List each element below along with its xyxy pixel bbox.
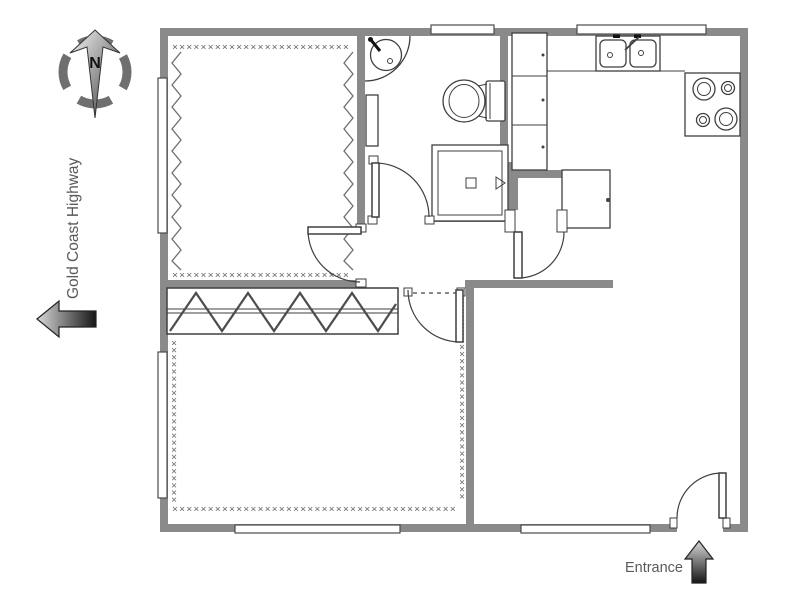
wall-shelf: [366, 95, 378, 146]
entrance-door-swing: [677, 473, 722, 518]
bedroom1-pattern-right: [344, 52, 353, 270]
bathroom-door-jamb-right: [425, 216, 434, 224]
window-bedroom2-south: [235, 525, 400, 533]
window-living-south: [521, 525, 650, 533]
burner-bl-outer: [697, 114, 710, 127]
doors: [308, 156, 730, 533]
compass-letter: N: [89, 55, 101, 72]
bedroom2-door-leaf: [456, 290, 463, 342]
bedroom2-pattern-bottom: ××××××××××××××××××××××××××××××××××××××××: [172, 504, 457, 515]
bedroom1-pattern-bottom: ×××××××××××××××××××××××××: [172, 270, 350, 281]
double-sink: [596, 32, 660, 71]
kitchen-door-jamb-east: [557, 210, 567, 232]
bathroom: [365, 36, 508, 221]
cabinet-handle-3: [542, 146, 545, 149]
corner-basin: [365, 36, 410, 81]
shower: [432, 145, 508, 221]
bedroom1-pattern-top: ×××××××××××××××××××××××××: [172, 42, 350, 53]
shower-outline: [432, 145, 508, 221]
sink-basin-left: [600, 40, 626, 67]
kitchen-door: [505, 210, 567, 278]
entrance-opening: [677, 523, 723, 533]
cabinet-handle-1: [542, 54, 545, 57]
highway-arrow-icon: [37, 301, 96, 337]
floor-plan-canvas: N Gold Coast Highway ×××××××××××××××××××…: [0, 0, 800, 600]
kitchen-door-swing: [518, 232, 564, 278]
window-bedroom2-west: [158, 352, 167, 498]
tall-cabinets-outline: [512, 33, 547, 170]
toilet-cistern: [486, 81, 505, 121]
kitchen-door-jamb-west: [505, 210, 515, 232]
entrance-door-jamb-right: [723, 518, 730, 528]
window-bedroom1-west: [158, 78, 167, 233]
bedroom2-pattern-left: ×××××××××××××××××××××××: [168, 340, 179, 504]
kitchen-door-leaf: [514, 232, 522, 278]
bedroom2-door-swing: [408, 290, 460, 342]
kitchen: [512, 32, 740, 228]
cabinet-handle-2: [542, 99, 545, 102]
bedroom-2: ××××××××××××××××××××××× ××××××××××××××××…: [167, 288, 467, 515]
tall-cabinets: [512, 33, 547, 170]
refrigerator: [562, 170, 610, 228]
entrance-arrow-icon: [685, 541, 713, 583]
cooktop: [685, 73, 740, 136]
bedroom1-door-leaf: [308, 227, 361, 234]
floor-plan-page: N Gold Coast Highway ×××××××××××××××××××…: [0, 0, 800, 600]
wall-right: [740, 28, 748, 532]
corner-basin-tap-base: [368, 37, 373, 42]
wardrobe: [167, 288, 398, 334]
burner-tr-outer: [722, 82, 735, 95]
bedroom1-pattern-left: [172, 52, 181, 270]
refrigerator-outline: [562, 170, 610, 228]
wall-kitchen-nib-horizontal: [508, 170, 562, 178]
window-bathroom-north: [431, 25, 494, 34]
wall-middle-west: [160, 280, 357, 288]
window-kitchen-north: [577, 25, 706, 34]
bathroom-door: [368, 156, 434, 224]
toilet: [443, 80, 505, 122]
highway-label: Gold Coast Highway: [65, 157, 82, 299]
wall-middle-east: [465, 280, 613, 288]
north-compass: N: [63, 30, 127, 118]
bedroom2-door: [404, 288, 465, 342]
entrance-door-jamb-left: [670, 518, 677, 528]
bedroom1-door-jamb-bottom: [356, 279, 366, 287]
burner-tl-outer: [693, 78, 715, 100]
bathroom-door-leaf: [372, 163, 379, 217]
entrance-door: [670, 473, 730, 533]
bathroom-door-swing: [375, 163, 429, 217]
wall-bedroom1-east: [357, 28, 365, 225]
refrigerator-handle: [606, 198, 610, 202]
burner-br-outer: [715, 108, 737, 130]
north-arrow-icon: [70, 30, 120, 118]
bedroom-1: ××××××××××××××××××××××××× ××××××××××××××…: [172, 42, 353, 281]
entrance-label: Entrance: [625, 560, 683, 576]
entrance-door-leaf: [719, 473, 726, 518]
